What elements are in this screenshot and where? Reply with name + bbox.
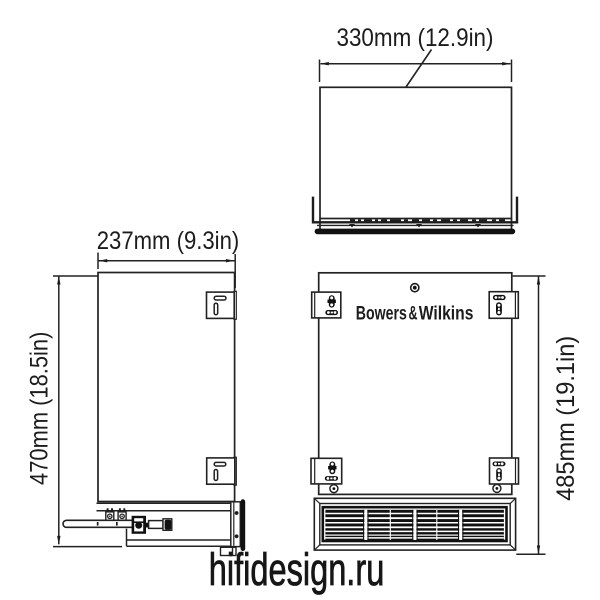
svg-text:485mm (19.1in): 485mm (19.1in) bbox=[552, 336, 580, 501]
svg-text:Bowers: Bowers bbox=[356, 302, 407, 324]
svg-text:Wilkins: Wilkins bbox=[419, 302, 474, 324]
svg-text:hifidesign.ru: hifidesign.ru bbox=[209, 544, 384, 595]
svg-text:237mm (9.3in): 237mm (9.3in) bbox=[97, 227, 240, 255]
svg-text:330mm (12.9in): 330mm (12.9in) bbox=[337, 24, 494, 52]
svg-text:470mm (18.5in): 470mm (18.5in) bbox=[26, 332, 54, 485]
svg-text:&: & bbox=[409, 302, 418, 324]
